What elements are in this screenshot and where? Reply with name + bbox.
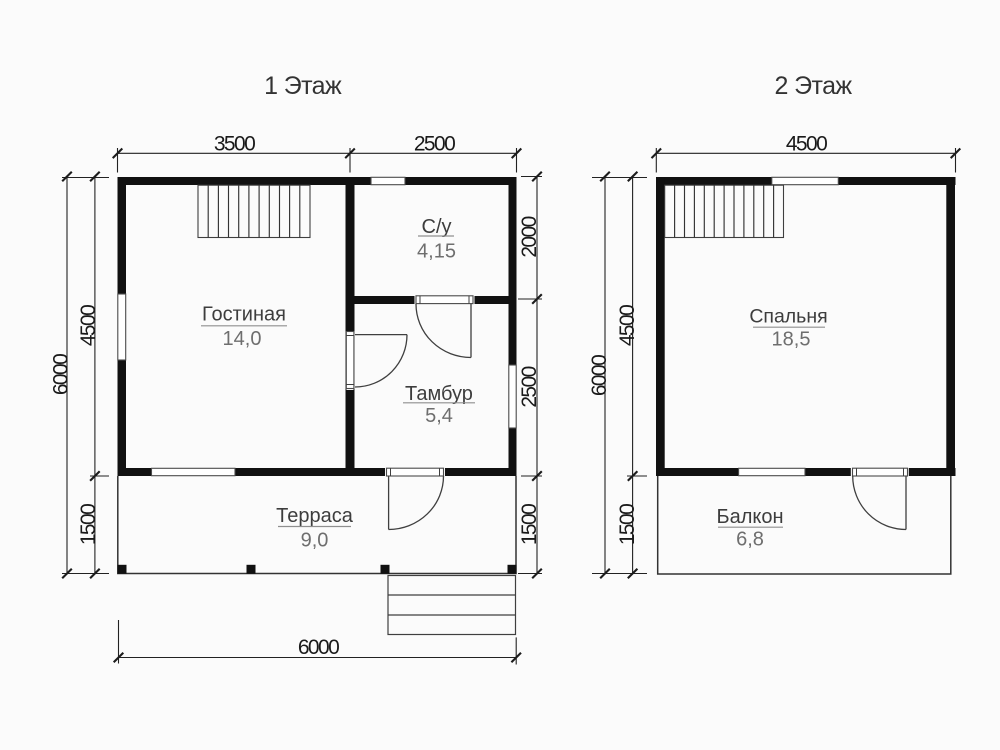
svg-text:1 Этаж: 1 Этаж [264,72,342,100]
svg-text:14,0: 14,0 [223,328,262,350]
svg-text:9,0: 9,0 [301,530,329,552]
svg-text:3500: 3500 [214,133,255,156]
svg-text:18,5: 18,5 [772,329,811,351]
svg-text:6,8: 6,8 [736,529,764,551]
svg-text:6000: 6000 [298,636,339,659]
svg-text:2500: 2500 [414,133,455,156]
svg-text:2 Этаж: 2 Этаж [774,72,852,100]
svg-text:2000: 2000 [518,216,541,257]
svg-text:Спальня: Спальня [749,306,827,328]
svg-text:Балкон: Балкон [716,506,783,528]
svg-text:1500: 1500 [77,504,100,545]
svg-text:6000: 6000 [588,355,611,396]
svg-text:4,15: 4,15 [417,241,456,263]
svg-text:1500: 1500 [616,504,639,545]
svg-text:1500: 1500 [518,504,541,545]
svg-text:6000: 6000 [50,354,73,395]
svg-text:Тамбур: Тамбур [405,383,473,405]
svg-text:5,4: 5,4 [425,405,453,427]
svg-text:Терраса: Терраса [276,505,354,527]
svg-text:2500: 2500 [518,366,541,407]
svg-text:4500: 4500 [616,305,639,346]
svg-text:4500: 4500 [786,133,827,156]
svg-text:Гостиная: Гостиная [202,304,286,326]
svg-text:4500: 4500 [77,305,100,346]
svg-text:С/у: С/у [422,216,452,238]
